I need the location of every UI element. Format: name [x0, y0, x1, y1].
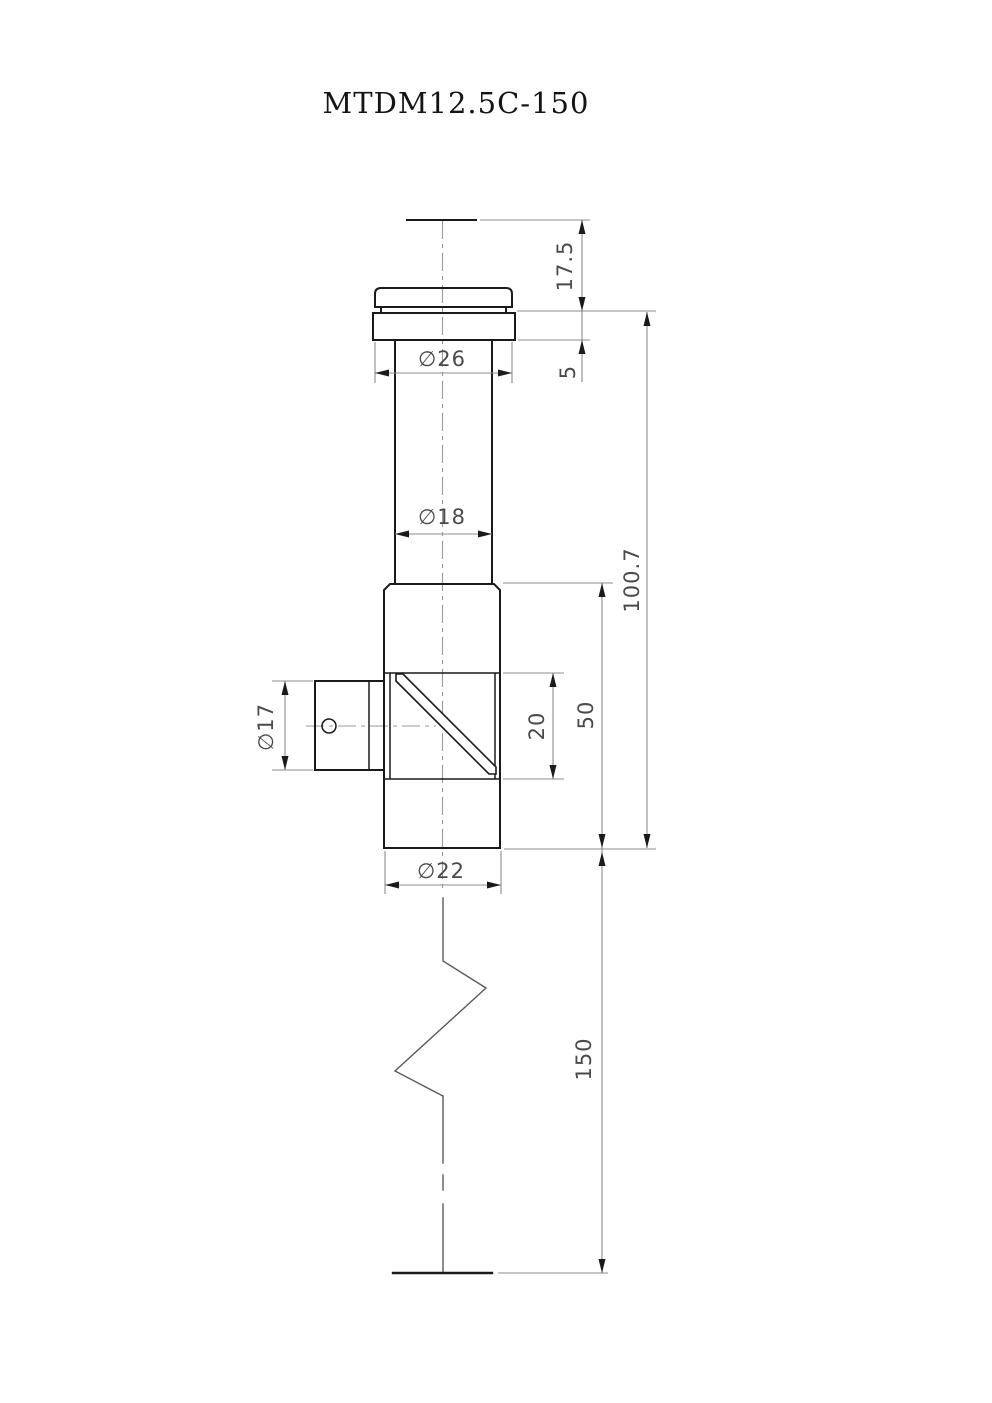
mirror-plate [396, 674, 496, 774]
arrow-left [385, 882, 399, 889]
arrow-up [579, 220, 586, 234]
arrow-up [579, 340, 586, 354]
arrow-up [282, 681, 289, 695]
cap-diameter-label: ∅26 [418, 347, 466, 371]
arrow-right [487, 882, 501, 889]
flange-outline [373, 313, 515, 340]
arrow-up [599, 852, 606, 866]
arrow-up [550, 673, 557, 687]
flange-height-label: 5 [556, 365, 580, 379]
arrow-right [478, 531, 492, 538]
arrow-down [550, 765, 557, 779]
arrow-left [395, 531, 409, 538]
body-height-label: 50 [574, 701, 598, 730]
zigzag-break-line [395, 898, 486, 1096]
arrow-down [644, 834, 651, 848]
arrow-up [599, 583, 606, 597]
part-outline [315, 220, 515, 1273]
neck-diameter-label: ∅18 [418, 505, 466, 529]
arrow-left [375, 370, 389, 377]
arrow-down [282, 756, 289, 770]
break-symbol [395, 898, 486, 1273]
arrow-right [498, 370, 512, 377]
arrow-down [579, 297, 586, 311]
top-offset-label: 17.5 [553, 241, 577, 292]
body-diameter-label: ∅22 [417, 859, 465, 883]
cap-outline [375, 288, 512, 307]
arrow-down [599, 1259, 606, 1273]
dimension-labels: ∅26 ∅18 ∅22 ∅17 17.5 5 100.7 50 20 150 [254, 241, 644, 1081]
tube-length-label: 150 [572, 1037, 596, 1080]
drawing-canvas: MTDM12.5C-150 [0, 0, 992, 1403]
aperture-height-label: 20 [525, 712, 549, 741]
arrow-up [644, 312, 651, 326]
overall-height-label: 100.7 [620, 547, 644, 612]
centerlines [306, 221, 443, 893]
technical-drawing-page: MTDM12.5C-150 [0, 0, 992, 1403]
drawing-title: MTDM12.5C-150 [323, 86, 590, 120]
port-diameter-label: ∅17 [254, 703, 278, 751]
arrow-down [599, 834, 606, 848]
